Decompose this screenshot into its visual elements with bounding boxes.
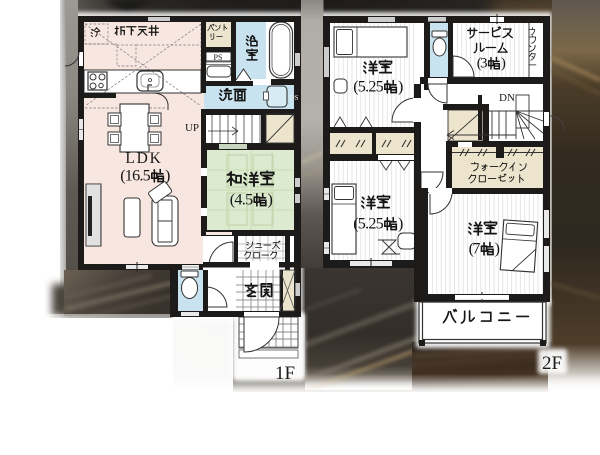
svg-text:): )	[268, 192, 273, 209]
svg-text:(5.25: (5.25	[353, 216, 384, 233]
svg-text:): )	[165, 168, 170, 185]
svg-text:PS: PS	[214, 53, 223, 62]
svg-text:1F: 1F	[275, 363, 295, 384]
svg-text:(16.5: (16.5	[120, 168, 151, 185]
svg-text:(7: (7	[469, 241, 481, 258]
svg-text:LDK: LDK	[125, 150, 162, 167]
svg-text:(4.5: (4.5	[230, 192, 254, 209]
svg-text:): )	[398, 79, 403, 96]
svg-text:2F: 2F	[542, 353, 562, 374]
svg-text:UP: UP	[185, 122, 199, 134]
svg-text:): )	[495, 241, 500, 258]
svg-text:(5.25: (5.25	[353, 79, 384, 96]
svg-text:DS: DS	[290, 94, 299, 102]
svg-text:DN: DN	[499, 92, 515, 104]
svg-text:): )	[501, 56, 506, 72]
svg-text:): )	[398, 216, 403, 233]
svg-text:(3: (3	[477, 56, 488, 72]
